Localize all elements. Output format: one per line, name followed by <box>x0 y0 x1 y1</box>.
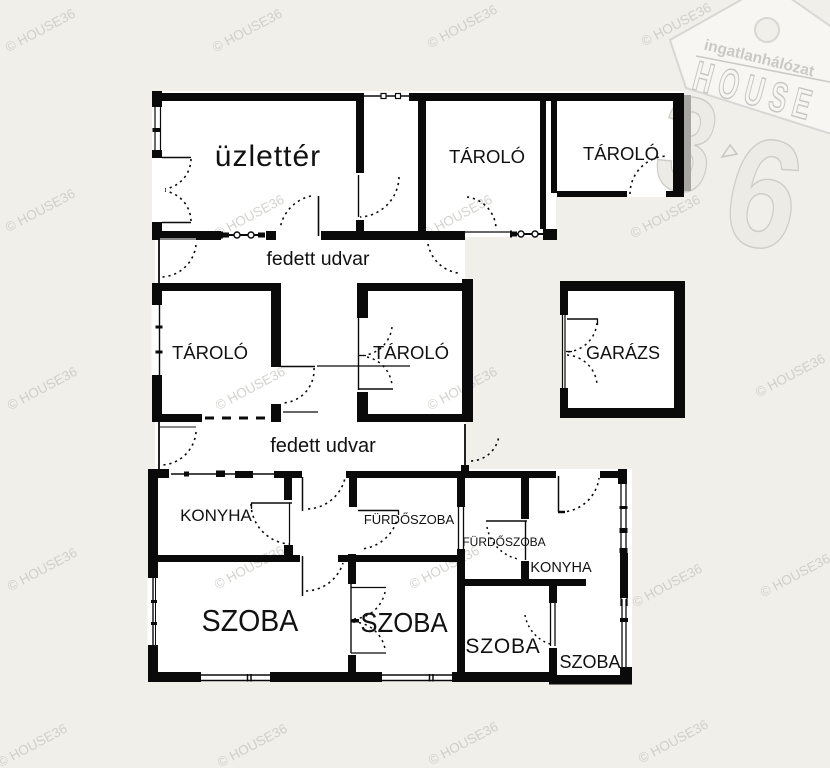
svg-text:FÜRDŐSZOBA: FÜRDŐSZOBA <box>462 534 545 549</box>
svg-text:üzlettér: üzlettér <box>215 140 321 173</box>
svg-text:TÁROLÓ: TÁROLÓ <box>449 146 525 167</box>
svg-text:TÁROLÓ: TÁROLÓ <box>172 342 248 363</box>
svg-text:TÁROLÓ: TÁROLÓ <box>583 143 659 164</box>
svg-text:TÁROLÓ: TÁROLÓ <box>373 342 449 363</box>
svg-text:GARÁZS: GARÁZS <box>586 343 660 363</box>
svg-text:fedett udvar: fedett udvar <box>270 435 376 457</box>
svg-text:SZOBA: SZOBA <box>465 635 540 658</box>
svg-text:SZOBA: SZOBA <box>202 604 299 638</box>
svg-text:SZOBA: SZOBA <box>559 652 620 672</box>
svg-text:SZOBA: SZOBA <box>360 607 447 638</box>
svg-text:KONYHA: KONYHA <box>180 506 252 525</box>
svg-text:FÜRDŐSZOBA: FÜRDŐSZOBA <box>364 512 455 527</box>
svg-text:KONYHA: KONYHA <box>530 560 592 576</box>
svg-text:fedett udvar: fedett udvar <box>267 248 370 270</box>
